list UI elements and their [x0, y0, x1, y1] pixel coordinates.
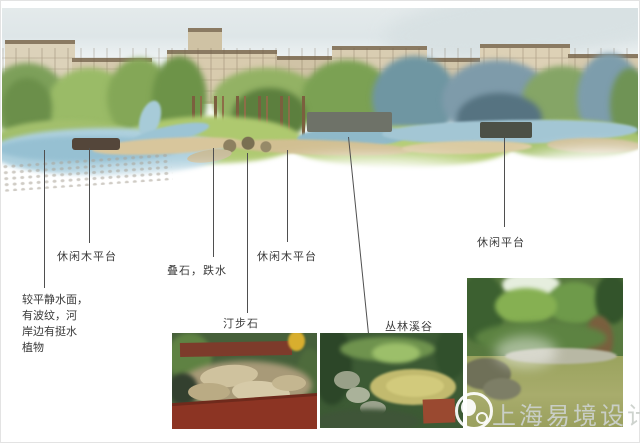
note-calm-water: 较平静水面， 有波纹，河 岸边有挺水 植物	[22, 292, 100, 356]
yijing-logo-icon	[455, 392, 493, 430]
wood-deck-left	[72, 138, 120, 150]
photo-shadow	[320, 409, 420, 428]
label-stepping-stones: 汀步石	[223, 315, 259, 331]
leader-line-calm-water	[44, 150, 45, 288]
rendering-canvas	[2, 8, 638, 235]
logo-swirl	[461, 399, 476, 416]
photo-foliage	[372, 343, 420, 363]
photo-forest-valley	[320, 333, 463, 428]
photo-foliage	[495, 288, 557, 324]
photo-red-plank	[180, 341, 292, 357]
photo-red-block	[423, 398, 456, 423]
leader-line-platform-right	[504, 138, 505, 227]
photo-rock	[346, 387, 370, 403]
photo-red-wall	[172, 395, 317, 429]
label-platform-right: 休闲平台	[477, 234, 525, 250]
leader-line-platform-mid	[287, 150, 288, 242]
page: 休闲木平台 叠石，跌水 休闲木平台 休闲平台 汀步石 丛林溪谷 较平静水面， 有…	[0, 0, 640, 443]
label-cascade: 叠石，跌水	[167, 262, 227, 278]
photo-stone	[188, 383, 230, 401]
platform-right-structure	[480, 122, 532, 138]
photo-sandy-pond	[386, 375, 444, 397]
leader-line-platform-left	[89, 148, 90, 243]
label-platform-mid: 休闲木平台	[257, 248, 317, 264]
leader-line-cascade	[213, 148, 214, 257]
leader-line-stepping-stones	[247, 153, 248, 313]
note-line: 较平静水面，	[22, 292, 100, 308]
note-line: 有波纹，河	[22, 308, 100, 324]
photo-mist	[495, 336, 557, 368]
photo-stepping-stones	[172, 333, 317, 429]
platform-mid-structure	[307, 112, 392, 132]
note-line: 岸边有挺水	[22, 324, 100, 340]
label-forest-valley: 丛林溪谷	[385, 318, 433, 334]
note-line: 植物	[22, 340, 100, 356]
photo-stone	[272, 375, 306, 391]
watermark-text: 上海易境设计	[492, 396, 640, 431]
label-platform-left: 休闲木平台	[57, 248, 117, 264]
white-wash	[2, 198, 638, 235]
logo-ring	[476, 412, 488, 424]
